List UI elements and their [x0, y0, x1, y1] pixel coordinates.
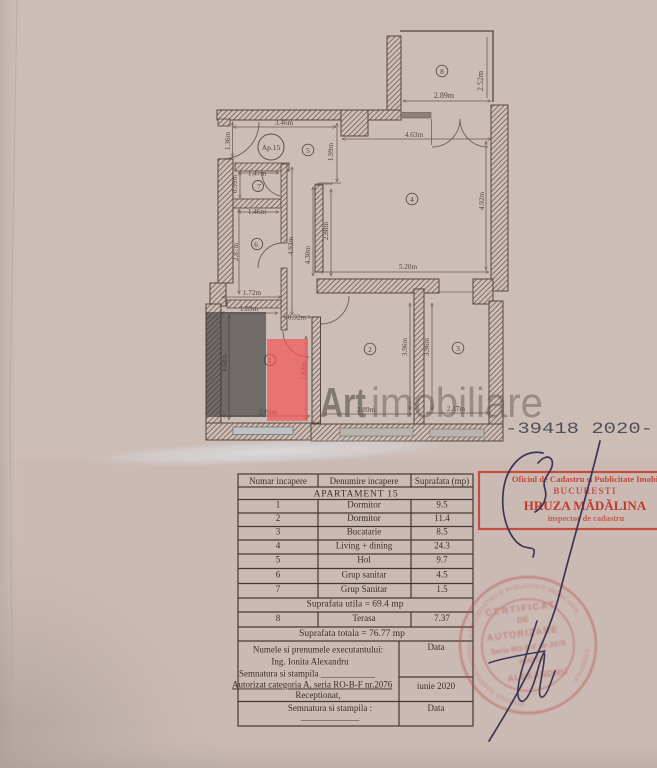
svg-text:1.99m: 1.99m — [327, 143, 335, 162]
svg-text:Ing. Ionita Alexandru: Ing. Ionita Alexandru — [271, 657, 349, 667]
svg-text:1.47m: 1.47m — [248, 170, 267, 178]
svg-text:Numar incapere: Numar incapere — [249, 476, 307, 486]
svg-text:4.93m: 4.93m — [287, 237, 295, 256]
svg-text:Oficiul de Cadastru si Publici: Oficiul de Cadastru si Publicitate Imobi — [512, 474, 657, 484]
svg-text:Art: Art — [320, 379, 366, 426]
svg-text:5: 5 — [306, 146, 310, 155]
svg-text:2: 2 — [276, 513, 281, 523]
svg-text:3.96m: 3.96m — [423, 338, 431, 357]
svg-text:8: 8 — [276, 613, 281, 623]
svg-text:3.46m: 3.46m — [275, 119, 294, 127]
svg-text:APARTAMENT 15: APARTAMENT 15 — [314, 490, 399, 500]
svg-text:Autorizat categoria A, seria R: Autorizat categoria A, seria RO-B-F nr.2… — [232, 680, 393, 690]
svg-text:7: 7 — [276, 584, 281, 594]
svg-text:2.52m: 2.52m — [476, 70, 485, 91]
svg-text:Bucatarie: Bucatarie — [347, 527, 381, 537]
svg-text:4: 4 — [276, 541, 281, 551]
svg-text:Hol: Hol — [357, 555, 371, 565]
svg-text:3.96m: 3.96m — [401, 338, 409, 357]
svg-text:4.92m: 4.92m — [478, 192, 486, 211]
svg-text:Living + dining: Living + dining — [336, 541, 393, 551]
svg-text:24.3: 24.3 — [434, 541, 450, 551]
svg-text:2.87m: 2.87m — [232, 243, 240, 262]
svg-text:BUCURESTI: BUCURESTI — [553, 486, 616, 496]
svg-text:5: 5 — [276, 555, 281, 565]
svg-text:2.89m: 2.89m — [434, 91, 455, 100]
svg-text:1.83m: 1.83m — [240, 305, 259, 313]
svg-text:9.7: 9.7 — [436, 555, 448, 565]
svg-text:Data: Data — [428, 703, 445, 713]
svg-text:Suprafata totala = 76.77 mp: Suprafata totala = 76.77 mp — [299, 628, 405, 639]
svg-text:Ap.15: Ap.15 — [262, 143, 281, 152]
svg-text:7: 7 — [257, 182, 261, 191]
svg-text:Denumire incapere: Denumire incapere — [330, 476, 399, 486]
svg-text:11.4: 11.4 — [434, 513, 450, 523]
svg-text:Suprafata utila = 69.4 mp: Suprafata utila = 69.4 mp — [307, 599, 404, 610]
svg-text:4: 4 — [410, 195, 414, 204]
svg-text:Dormitor: Dormitor — [347, 513, 381, 523]
svg-text:3: 3 — [456, 344, 460, 353]
svg-text:2.88m: 2.88m — [322, 222, 330, 241]
svg-text:Grup sanitar: Grup sanitar — [342, 570, 387, 580]
svg-text:iunie 2020: iunie 2020 — [417, 681, 456, 691]
svg-text:1.46m: 1.46m — [248, 208, 267, 216]
svg-text:Semnatura si stampila _______: Semnatura si stampila ____________ — [239, 669, 375, 679]
svg-text:3: 3 — [276, 527, 281, 537]
svg-text:7.37: 7.37 — [434, 613, 450, 623]
svg-text:1.36m: 1.36m — [224, 132, 232, 151]
svg-text:4.5: 4.5 — [436, 570, 448, 580]
svg-text:Data: Data — [428, 642, 445, 652]
svg-text:inspector de cadastru: inspector de cadastru — [548, 514, 625, 523]
svg-text:DE: DE — [516, 614, 529, 625]
svg-text:imobiliare: imobiliare — [371, 379, 543, 426]
svg-text:0.99m: 0.99m — [231, 175, 239, 194]
svg-text:6: 6 — [276, 570, 281, 580]
svg-text:8: 8 — [440, 67, 444, 76]
svg-text:8.5: 8.5 — [436, 527, 448, 537]
svg-text:Suprafata (mp): Suprafata (mp) — [415, 476, 469, 486]
svg-text:Numele si prenumele executantu: Numele si prenumele executantului: — [253, 645, 383, 655]
svg-text:5.20m: 5.20m — [399, 263, 418, 271]
svg-text:6: 6 — [254, 240, 258, 249]
svg-text:1.5: 1.5 — [436, 584, 448, 594]
svg-text:0.92m: 0.92m — [288, 314, 307, 322]
svg-text:4.30m: 4.30m — [304, 246, 312, 265]
svg-text:4.63m: 4.63m — [405, 131, 424, 139]
svg-text:Dormitor: Dormitor — [347, 500, 381, 510]
svg-text:Grup Sanitar: Grup Sanitar — [341, 584, 387, 594]
svg-text:1.72m: 1.72m — [243, 289, 262, 297]
svg-text:_____________: _____________ — [300, 712, 360, 722]
svg-text:-39418 2020-: -39418 2020- — [505, 420, 653, 438]
svg-text:Receptionat,: Receptionat, — [295, 690, 340, 700]
svg-text:9.5: 9.5 — [436, 500, 448, 510]
svg-text:Terasa: Terasa — [352, 613, 375, 623]
svg-text:2: 2 — [368, 345, 372, 354]
svg-text:1: 1 — [276, 500, 281, 510]
